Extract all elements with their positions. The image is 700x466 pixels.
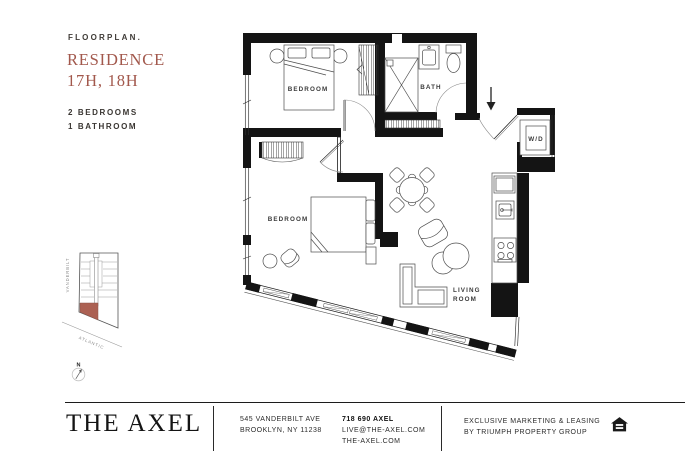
nightstand (366, 247, 376, 264)
bedroom2-label: BEDROOM (268, 216, 309, 223)
pillow (312, 48, 330, 58)
building-keyplan: VANDERBILT ATLANTIC N (55, 248, 130, 383)
footer-separator (213, 406, 214, 451)
street-label-atlantic: ATLANTIC (78, 335, 105, 350)
round-chair (443, 243, 469, 269)
armchair (416, 217, 450, 249)
equal-housing-icon (611, 417, 628, 432)
highlighted-unit (80, 303, 98, 320)
dining-set (389, 167, 436, 214)
unit-specs: 2 BEDROOMS 1 BATHROOM (68, 106, 138, 134)
marketing-block: EXCLUSIVE MARKETING & LEASING BY TRIUMPH… (464, 416, 600, 438)
floorplan-drawing: BEDROOM BATH BEDROOM W/D LIVING ROOM (225, 25, 555, 370)
living-room-label-line2: ROOM (453, 296, 477, 303)
residence-title-line1: RESIDENCE (67, 49, 165, 70)
the-axel-logo: THE AXEL (66, 410, 202, 438)
address-line2: BROOKLYN, NY 11238 (240, 425, 322, 436)
bath-label: BATH (420, 84, 441, 91)
wall-notch (392, 34, 402, 43)
pillow (288, 48, 306, 58)
nightstand (333, 49, 347, 63)
keyplan-units (79, 253, 118, 328)
wd-label: W/D (528, 136, 544, 143)
stove (494, 238, 516, 262)
address-block: 545 VANDERBILT AVE BROOKLYN, NY 11238 (240, 414, 322, 436)
north-compass-icon: N (72, 363, 85, 381)
marketing-line2: BY TRIUMPH PROPERTY GROUP (464, 427, 600, 438)
email: LIVE@THE-AXEL.COM (342, 425, 425, 436)
side-table (263, 254, 277, 268)
bedroom2-closet (259, 142, 303, 162)
hall-closet (385, 120, 440, 128)
residence-title: RESIDENCE 17H, 18H (67, 49, 165, 91)
address-line1: 545 VANDERBILT AVE (240, 414, 322, 425)
bedrooms-spec: 2 BEDROOMS (68, 106, 138, 120)
bedroom-chair (279, 247, 301, 269)
bed2 (311, 197, 366, 252)
contact-block: 718 690 AXEL LIVE@THE-AXEL.COM THE-AXEL.… (342, 414, 425, 447)
furniture (263, 45, 550, 307)
bedroom1-label: BEDROOM (288, 86, 329, 93)
phone-number: 718 690 AXEL (342, 414, 425, 425)
living-room-label-line1: LIVING (453, 287, 481, 294)
residence-title-line2: 17H, 18H (67, 70, 165, 91)
street-label-vanderbilt: VANDERBILT (65, 258, 70, 293)
footer-divider-line (65, 402, 685, 403)
toilet (446, 45, 461, 53)
compass-n-label: N (77, 363, 81, 369)
website: THE-AXEL.COM (342, 436, 425, 447)
footer-separator (441, 406, 442, 451)
floorplan-eyebrow: FLOORPLAN. (68, 33, 142, 42)
pillow (366, 223, 375, 244)
bedroom1-closet (357, 45, 378, 95)
nightstand (270, 49, 284, 63)
pillow (366, 200, 375, 221)
bathrooms-spec: 1 BATHROOM (68, 120, 138, 134)
dining-table (400, 178, 425, 203)
entry-arrow-icon (487, 87, 496, 111)
marketing-line1: EXCLUSIVE MARKETING & LEASING (464, 416, 600, 427)
